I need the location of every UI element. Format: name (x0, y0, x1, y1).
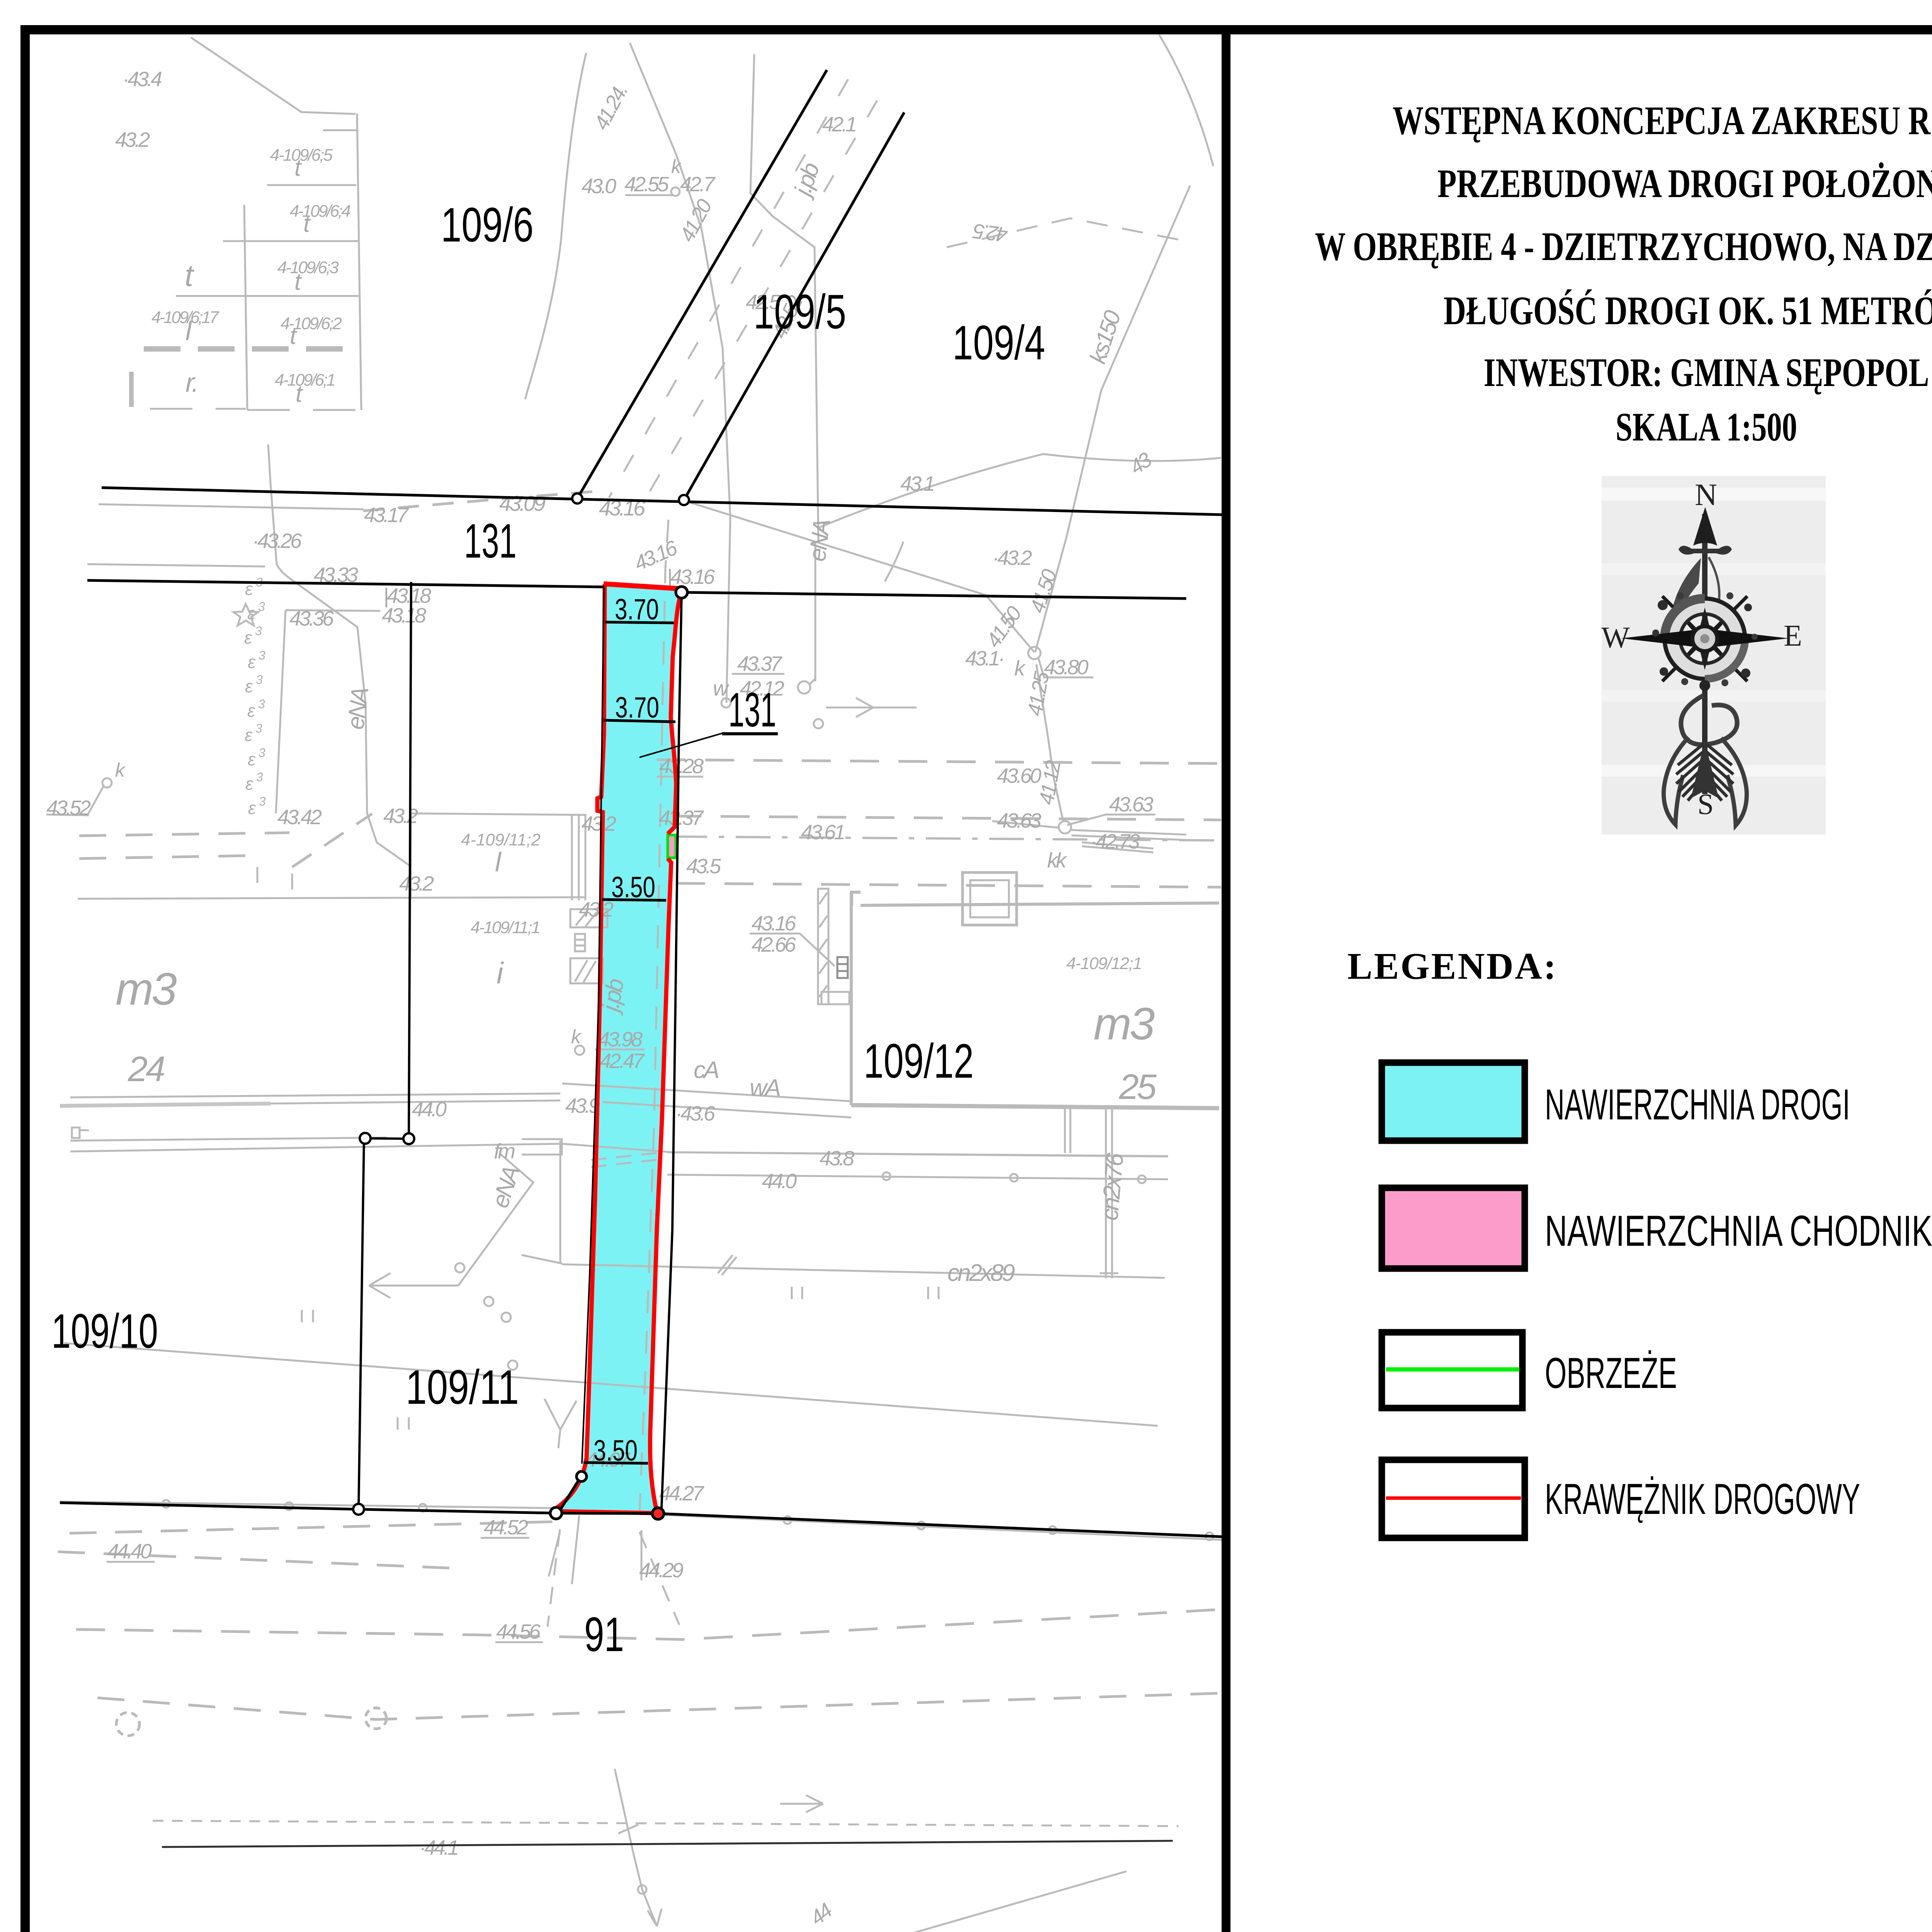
svg-text:43.1: 43.1 (900, 472, 934, 495)
svg-text:N: N (1695, 478, 1717, 512)
svg-text:E: E (1784, 619, 1802, 652)
svg-text:43.8: 43.8 (820, 1147, 854, 1170)
svg-text:43.0: 43.0 (582, 175, 616, 198)
svg-text:3: 3 (259, 648, 265, 662)
svg-text:NAWIERZCHNIA CHODNIKA/OPASKI: NAWIERZCHNIA CHODNIKA/OPASKI (1545, 1207, 1932, 1255)
svg-text:3.50: 3.50 (594, 1434, 638, 1467)
svg-text:ε: ε (245, 676, 253, 696)
svg-text:109/12: 109/12 (864, 1034, 974, 1088)
svg-text:cA: cA (694, 1057, 719, 1083)
svg-text:42.1: 42.1 (822, 113, 855, 136)
svg-text:44.40: 44.40 (107, 1540, 152, 1563)
svg-text:44.56: 44.56 (496, 1620, 541, 1643)
svg-text:42.66: 42.66 (752, 933, 796, 956)
svg-text:43.2: 43.2 (383, 804, 418, 828)
svg-text:43.2: 43.2 (115, 128, 150, 151)
svg-text:43.2: 43.2 (582, 812, 616, 835)
svg-text:43.42: 43.42 (277, 806, 322, 829)
svg-text:4-109/11;1: 4-109/11;1 (471, 918, 539, 937)
svg-text:43.2: 43.2 (579, 898, 614, 921)
svg-text:KRAWĘŻNIK DROGOWY: KRAWĘŻNIK DROGOWY (1545, 1475, 1860, 1523)
svg-text:42.7: 42.7 (680, 173, 716, 196)
svg-text:eNA: eNA (804, 518, 835, 563)
svg-text:ε: ε (245, 774, 253, 794)
svg-text:NAWIERZCHNIA DROGI: NAWIERZCHNIA DROGI (1545, 1080, 1850, 1129)
svg-text:LEGENDA:: LEGENDA: (1347, 946, 1558, 987)
svg-text:109/6: 109/6 (441, 198, 534, 252)
svg-text:43.37: 43.37 (659, 806, 704, 830)
svg-text:109/10: 109/10 (51, 1304, 158, 1358)
svg-text:25: 25 (1119, 1067, 1157, 1107)
svg-text:ε: ε (247, 701, 255, 721)
svg-text:131: 131 (728, 683, 776, 737)
svg-text:3.70: 3.70 (615, 593, 659, 626)
svg-text:W OBRĘBIE 4 - DZIETRZYCHOWO, N: W OBRĘBIE 4 - DZIETRZYCHOWO, NA DZIAŁCE:… (1315, 224, 1932, 269)
svg-text:131: 131 (464, 514, 517, 568)
svg-text:43.63: 43.63 (1109, 793, 1153, 816)
svg-text:43.17: 43.17 (364, 503, 409, 527)
svg-text:·43.26: ·43.26 (252, 529, 302, 553)
svg-text:ε: ε (247, 603, 255, 623)
svg-text:DŁUGOŚĆ DROGI OK. 51 METRÓW: DŁUGOŚĆ DROGI OK. 51 METRÓW (1444, 288, 1932, 333)
svg-text:INWESTOR: GMINA SĘPOPOL: INWESTOR: GMINA SĘPOPOL (1484, 350, 1929, 395)
svg-text:4-109/12;1: 4-109/12;1 (1066, 954, 1141, 973)
svg-text:cn2x89: cn2x89 (947, 1260, 1015, 1286)
svg-text:m3: m3 (1094, 998, 1155, 1049)
svg-text:44.52: 44.52 (484, 1516, 528, 1539)
svg-text:SKALA 1:500: SKALA 1:500 (1616, 404, 1797, 449)
svg-text:109/11: 109/11 (406, 1361, 519, 1414)
svg-text:4-109/6;5: 4-109/6;5 (270, 146, 333, 165)
svg-text:3: 3 (258, 600, 265, 614)
svg-text:43.09: 43.09 (499, 491, 545, 515)
svg-text:PRZEBUDOWA DROGI POŁOŻONEJ: PRZEBUDOWA DROGI POŁOŻONEJ (1437, 161, 1932, 206)
svg-text:43.36: 43.36 (289, 607, 334, 630)
svg-text:·42.73: ·42.73 (1090, 830, 1140, 853)
svg-text:3: 3 (258, 697, 265, 711)
svg-text:44.0: 44.0 (412, 1098, 447, 1121)
svg-text:43.52: 43.52 (46, 796, 91, 820)
svg-text:OBRZEŻE: OBRZEŻE (1545, 1349, 1677, 1397)
svg-text:4-109/11;2: 4-109/11;2 (461, 830, 541, 849)
svg-text:109/4: 109/4 (952, 316, 1045, 370)
svg-text:43.61: 43.61 (801, 821, 844, 844)
svg-text:3: 3 (259, 746, 265, 760)
svg-text:91: 91 (584, 1608, 624, 1662)
svg-text:43.18: 43.18 (382, 604, 426, 627)
svg-text:3: 3 (256, 673, 263, 687)
svg-text:·43.4: ·43.4 (122, 68, 162, 91)
svg-text:ε: ε (248, 798, 256, 818)
svg-text:43.28: 43.28 (659, 755, 704, 778)
svg-text:43.98: 43.98 (598, 1028, 643, 1051)
svg-text:W: W (1601, 621, 1630, 654)
svg-text:43.16: 43.16 (752, 912, 796, 935)
svg-text:3.70: 3.70 (615, 691, 659, 724)
svg-text:4-109/6;4: 4-109/6;4 (290, 202, 350, 221)
svg-text:43.37: 43.37 (737, 652, 782, 675)
svg-text:43.63: 43.63 (997, 809, 1041, 832)
svg-text:42.5: 42.5 (971, 219, 1009, 247)
svg-text:·44.1: ·44.1 (419, 1836, 457, 1859)
svg-text:|43.16: |43.16 (667, 565, 715, 588)
svg-text:109/5: 109/5 (753, 285, 846, 339)
svg-text:3: 3 (256, 770, 263, 784)
svg-text:m3: m3 (116, 964, 177, 1015)
svg-text:wA: wA (750, 1075, 780, 1101)
svg-text:4-109/6;1: 4-109/6;1 (275, 371, 335, 389)
svg-text:eNA: eNA (342, 686, 374, 731)
svg-text:4-109/6;3: 4-109/6;3 (277, 258, 339, 277)
svg-text:S: S (1697, 788, 1714, 821)
svg-text:ε: ε (248, 652, 256, 672)
svg-text:3.50: 3.50 (611, 871, 655, 904)
svg-text:WSTĘPNA KONCEPCJA ZAKRESU ROBÓ: WSTĘPNA KONCEPCJA ZAKRESU ROBÓT (1393, 98, 1932, 143)
svg-text:fm: fm (494, 1139, 515, 1163)
svg-text:43.5: 43.5 (686, 855, 721, 878)
svg-text:43.1·: 43.1· (965, 647, 1003, 670)
svg-text:44.27: 44.27 (659, 1482, 704, 1505)
svg-text:3: 3 (259, 794, 266, 808)
svg-text:·43.6: ·43.6 (675, 1102, 716, 1125)
svg-text:43.2: 43.2 (399, 872, 434, 895)
svg-text:ε: ε (245, 725, 253, 745)
svg-text:44.29: 44.29 (639, 1559, 683, 1582)
svg-text:·43.2: ·43.2 (992, 546, 1032, 570)
svg-text:42.55: 42.55 (624, 173, 669, 196)
svg-text:44.0: 44.0 (762, 1170, 797, 1193)
svg-text:43.60: 43.60 (997, 764, 1041, 787)
svg-text:24: 24 (128, 1049, 164, 1089)
svg-text:42.47: 42.47 (600, 1049, 645, 1073)
svg-text:r.: r. (185, 367, 197, 398)
svg-text:ε: ε (248, 749, 256, 769)
svg-text:3: 3 (255, 624, 262, 638)
svg-text:ε: ε (244, 628, 252, 648)
svg-text:kk: kk (1047, 848, 1068, 872)
svg-text:3: 3 (255, 721, 262, 735)
